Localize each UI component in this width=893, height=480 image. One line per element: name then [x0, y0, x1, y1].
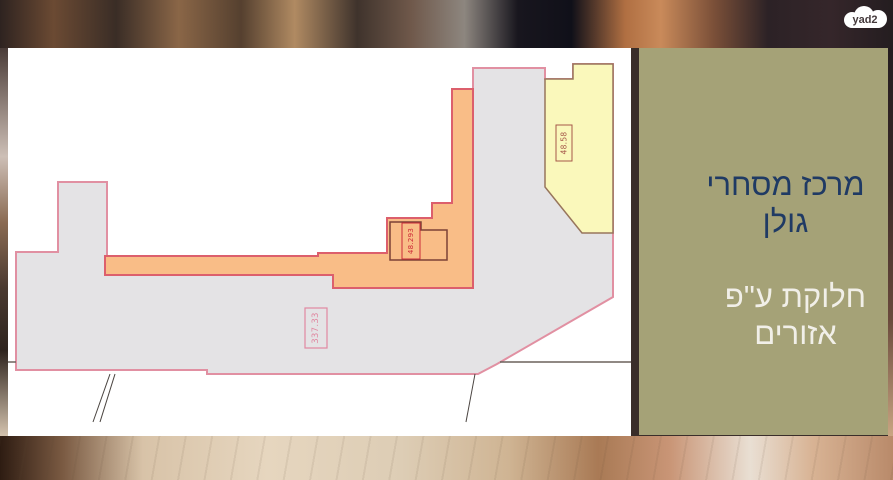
background-photo-right-edge — [888, 48, 893, 436]
yad2-logo: yad2 — [842, 5, 889, 32]
title-line-2: גולן — [683, 203, 888, 240]
yad2-logo-text: yad2 — [852, 14, 877, 26]
corridor-zone — [105, 89, 473, 288]
listing-subtitle: חלוקת ע"פ אזורים — [703, 278, 888, 352]
area-label-yellow: 48.58 — [560, 132, 569, 155]
floor-plan-panel: 48.58 48.293 337.33 — [8, 48, 631, 436]
background-photo-bottom — [0, 436, 893, 480]
title-line-1: מרכז מסחרי — [683, 166, 888, 203]
dimension-line-right — [466, 374, 475, 422]
subtitle-line-2: אזורים — [703, 315, 888, 352]
subtitle-line-1: חלוקת ע"פ — [703, 278, 888, 315]
area-label-room: 48.293 — [407, 228, 415, 254]
listing-image-page: { "page": { "width": 893, "height": 480 … — [0, 0, 893, 480]
background-photo-left-edge — [0, 48, 8, 436]
yad2-cloud-icon: yad2 — [842, 5, 889, 32]
listing-title: מרכז מסחרי גולן — [683, 166, 888, 240]
area-label-main: 337.33 — [311, 312, 321, 344]
background-photo-top — [0, 0, 893, 48]
floor-plan-drawing: 48.58 48.293 337.33 — [8, 48, 631, 436]
info-panel: מרכז מסחרי גולן חלוקת ע"פ אזורים — [639, 48, 888, 435]
